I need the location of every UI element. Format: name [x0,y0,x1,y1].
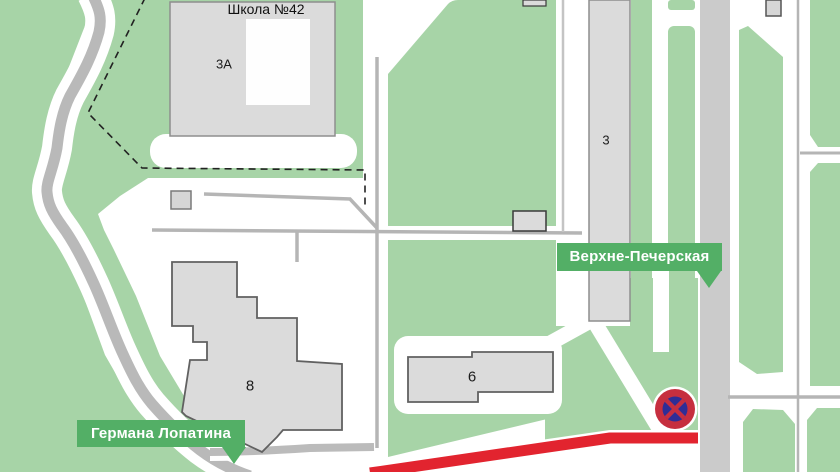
green-strip-2-cap [668,0,695,10]
street-label-germana-lopatina: Германа Лопатина [77,420,245,447]
street-label-pointer [222,447,246,464]
pocket-below-school [150,134,357,168]
green-block-se1 [743,409,795,472]
green-block-se2 [807,408,840,472]
main-road-band [700,0,730,472]
street-label-verkhne-pecherskaya-text: Верхне-Печерская [570,248,710,265]
building-small-west [171,191,191,209]
map-canvas[interactable]: Школа №42 3А 3 8 6 Верхне-Печерская Герм… [0,0,840,472]
no-stopping-sign-icon [653,387,698,432]
building-3 [589,0,630,321]
street-label-pointer [697,271,721,288]
street-label-germana-lopatina-text: Германа Лопатина [91,425,231,442]
green-block-ne [810,0,840,147]
map-drawing [0,0,840,472]
street-label-verkhne-pecherskaya: Верхне-Печерская [557,243,722,271]
building-small-top [523,0,546,6]
green-median-east [739,26,783,374]
building-small-center [513,211,546,231]
building-school-courtyard [246,19,310,105]
green-block-e [810,163,840,386]
building-small-ne [766,0,781,16]
